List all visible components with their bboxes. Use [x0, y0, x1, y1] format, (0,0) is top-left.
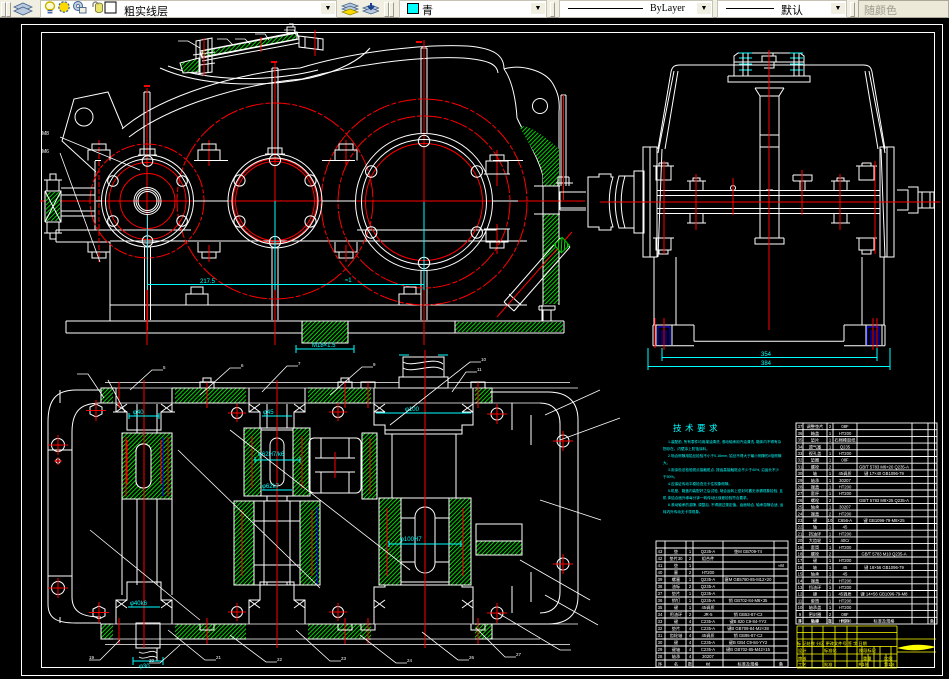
svg-text:217.5: 217.5 — [200, 279, 216, 285]
svg-text:螺栓: 螺栓 — [811, 497, 820, 504]
svg-text:共1张: 共1张 — [858, 661, 870, 668]
svg-text:端盖: 端盖 — [811, 484, 819, 491]
svg-text:销钉: 销钉 — [672, 597, 681, 604]
svg-text:JR-5: JR-5 — [704, 612, 714, 617]
svg-text:21: 21 — [216, 655, 222, 660]
svg-text:轴承: 轴承 — [811, 571, 820, 578]
svg-text:物存在。内壁涂上防蚀涂料。: 物存在。内壁涂上防蚀涂料。 — [663, 446, 710, 451]
svg-text:GB/T 5783 M10 Q235-A: GB/T 5783 M10 Q235-A — [861, 552, 906, 557]
svg-text:34: 34 — [798, 444, 803, 449]
svg-text:45调质: 45调质 — [838, 470, 851, 477]
svg-text:HT200: HT200 — [702, 570, 715, 575]
svg-text:HT200: HT200 — [839, 451, 852, 456]
svg-text:HT200: HT200 — [839, 558, 852, 563]
svg-text:键B GB708-84-M2×38: 键B GB708-84-M2×38 — [727, 625, 769, 632]
svg-text:19: 19 — [798, 545, 803, 550]
svg-text:14: 14 — [798, 578, 803, 583]
svg-text:12: 12 — [798, 592, 803, 597]
svg-text:φ30: φ30 — [139, 664, 150, 670]
svg-text:键 17×40 GB1096-79: 键 17×40 GB1096-79 — [864, 470, 904, 477]
svg-text:塞M GB5780-85-M12×20: 塞M GB5780-85-M12×20 — [725, 576, 773, 582]
svg-text:35: 35 — [658, 605, 663, 610]
svg-text:标准化: 标准化 — [824, 647, 837, 654]
svg-text:挡油环: 挡油环 — [809, 584, 822, 591]
svg-text:13: 13 — [798, 585, 803, 590]
svg-text:HT200: HT200 — [839, 585, 852, 590]
svg-text:轴承: 轴承 — [811, 504, 820, 511]
svg-text:M18×1.5: M18×1.5 — [312, 343, 336, 349]
svg-text:工艺: 工艺 — [798, 662, 806, 667]
svg-text:轴: 轴 — [813, 564, 817, 571]
svg-text:螺塞: 螺塞 — [672, 576, 681, 583]
svg-text:25: 25 — [798, 505, 803, 510]
svg-text:40: 40 — [658, 570, 663, 575]
svg-text:材料: 材料 — [841, 618, 850, 625]
svg-text:27: 27 — [516, 652, 522, 657]
svg-text:24: 24 — [798, 511, 803, 516]
svg-text:21: 21 — [798, 531, 803, 536]
svg-text:φ40: φ40 — [133, 410, 144, 416]
svg-text:C235-A: C235-A — [701, 640, 715, 645]
svg-text:标准及规格: 标准及规格 — [738, 661, 760, 668]
svg-text:标准及规格: 标准及规格 — [874, 618, 896, 625]
svg-text:垫片: 垫片 — [672, 590, 680, 597]
svg-text:31: 31 — [658, 633, 663, 638]
svg-text:M6: M6 — [42, 149, 49, 155]
svg-text:φ45: φ45 — [263, 410, 274, 416]
svg-text:批准: 批准 — [824, 661, 832, 668]
svg-text:32: 32 — [798, 458, 803, 463]
svg-text:23: 23 — [798, 518, 803, 523]
svg-text:键B GB4 C9-84-YY2: 键B GB4 C9-84-YY2 — [729, 639, 768, 646]
svg-text:轴: 轴 — [813, 524, 817, 531]
svg-text:GB/T 5783 M8×25 Q235-A: GB/T 5783 M8×25 Q235-A — [859, 498, 909, 503]
svg-text:视孔盖: 视孔盖 — [809, 450, 822, 457]
svg-text:垫片30: 垫片30 — [669, 555, 683, 562]
svg-text:材: 材 — [706, 661, 710, 667]
svg-text:序: 序 — [658, 661, 662, 668]
svg-text:≈M: ≈M — [778, 563, 784, 568]
svg-text:30207: 30207 — [839, 478, 851, 483]
svg-text:22: 22 — [277, 657, 283, 662]
svg-text:轴承盖: 轴承盖 — [809, 604, 822, 611]
svg-text:384: 384 — [761, 361, 772, 367]
svg-text:密封圈: 密封圈 — [809, 611, 822, 618]
svg-text:3.用涂色法检验斑点接触斑点, 按齿高接触斑点不少于40%,: 3.用涂色法检验斑点接触斑点, 按齿高接触斑点不少于40%, 沿齿长不少 — [668, 467, 780, 472]
svg-text:20: 20 — [149, 658, 155, 663]
svg-text:键B GB702-85-M42×15: 键B GB702-85-M42×15 — [726, 646, 771, 653]
svg-text:HT200: HT200 — [839, 511, 852, 516]
svg-text:HT200: HT200 — [839, 531, 852, 536]
svg-text:甩油环: 甩油环 — [670, 611, 683, 618]
svg-text:φ62k7: φ62k7 — [262, 484, 280, 490]
svg-text:15: 15 — [798, 572, 803, 577]
svg-text:销 GB702-84-M6×35: 销 GB702-84-M6×35 — [729, 597, 768, 604]
svg-text:5.机座、箱盖内装配好之后试验, 啮合运转上密封可靠无渗漏现: 5.机座、箱盖内装配好之后试验, 啮合运转上密封可靠无渗漏现象检验, 且 — [668, 488, 783, 493]
svg-text:Q235-A: Q235-A — [701, 591, 716, 596]
svg-text:354: 354 — [761, 352, 772, 358]
svg-text:1.装配前, 所有零件均用煤油清洗, 滚动轴承用汽油清洗,: 1.装配前, 所有零件均用煤油清洗, 滚动轴承用汽油清洗, 箱体内不得有杂 — [668, 439, 782, 444]
svg-text:11: 11 — [798, 598, 803, 603]
svg-text:调整垫片: 调整垫片 — [807, 423, 824, 430]
svg-text:37: 37 — [658, 591, 663, 596]
svg-text:C235-A: C235-A — [701, 647, 715, 652]
svg-text:套筒: 套筒 — [811, 544, 819, 551]
svg-text:22: 22 — [798, 525, 803, 530]
svg-text:石棉橡胶纸: 石棉橡胶纸 — [835, 437, 857, 444]
svg-text:Q235: Q235 — [840, 444, 851, 449]
svg-text:45: 45 — [843, 565, 848, 570]
svg-text:Q235-A: Q235-A — [701, 598, 716, 603]
svg-text:08F: 08F — [841, 424, 849, 429]
svg-text:36: 36 — [798, 431, 803, 436]
svg-text:HT200: HT200 — [839, 431, 852, 436]
svg-text:37: 37 — [798, 424, 803, 429]
svg-text:36: 36 — [658, 598, 663, 603]
svg-text:技术要求: 技术要求 — [673, 423, 721, 433]
svg-text:33: 33 — [798, 451, 803, 456]
svg-text:42: 42 — [658, 556, 663, 561]
svg-text:45: 45 — [843, 525, 848, 530]
svg-text:30207: 30207 — [702, 654, 714, 659]
svg-text:29: 29 — [798, 478, 803, 483]
svg-text:24: 24 — [407, 658, 413, 663]
svg-text:键轴: 键轴 — [672, 646, 680, 653]
svg-text:11: 11 — [477, 367, 482, 372]
svg-text:垫片: 垫片 — [672, 625, 680, 632]
svg-text:垫M GB709-74: 垫M GB709-74 — [734, 548, 763, 554]
svg-text:33: 33 — [658, 619, 663, 624]
svg-text:φ100H7: φ100H7 — [400, 537, 422, 543]
svg-text:垫片: 垫片 — [811, 437, 819, 444]
svg-text:39: 39 — [658, 577, 663, 582]
svg-text:≈1: ≈1 — [345, 278, 352, 284]
svg-text:大齿轮: 大齿轮 — [809, 537, 822, 544]
svg-text:M8: M8 — [42, 131, 49, 137]
svg-text:端盖: 端盖 — [811, 577, 819, 584]
svg-text:比例: 比例 — [884, 655, 892, 662]
svg-text:4.应保证传动平稳检查无卡住现象侧隙。: 4.应保证传动平稳检查无卡住现象侧隙。 — [668, 481, 732, 486]
svg-text:30: 30 — [658, 640, 663, 645]
svg-text:2.啮合侧隙用铅丝检验不小于0.16mm, 铅丝不得大于最小: 2.啮合侧隙用铅丝检验不小于0.16mm, 铅丝不得大于最小侧隙的4倍侧隙 — [668, 453, 782, 458]
svg-text:Q235-A: Q235-A — [701, 577, 716, 582]
svg-text:GB/T 5783 M6×20 Q235-A: GB/T 5783 M6×20 Q235-A — [859, 464, 909, 469]
svg-text:35: 35 — [798, 438, 803, 443]
svg-text:设计: 设计 — [798, 647, 806, 654]
svg-text:HT200: HT200 — [839, 545, 852, 550]
svg-text:45调质: 45调质 — [838, 591, 851, 598]
svg-text:油标: 油标 — [672, 583, 680, 590]
svg-text:45调质: 45调质 — [701, 604, 714, 611]
svg-text:名: 名 — [674, 661, 678, 668]
svg-text:28: 28 — [658, 654, 663, 659]
svg-text:销 GB95-87-C2: 销 GB95-87-C2 — [734, 632, 764, 639]
svg-text:键 16×56 GB1096-79: 键 16×56 GB1096-79 — [864, 564, 904, 571]
svg-text:转内外传动无卡滞现象。: 转内外传动无卡滞现象。 — [663, 509, 703, 514]
svg-text:27: 27 — [798, 491, 803, 496]
svg-text:审核: 审核 — [798, 655, 807, 662]
svg-text:垫圈: 垫圈 — [811, 457, 819, 464]
svg-text:30207: 30207 — [839, 505, 851, 510]
svg-text:轴承: 轴承 — [672, 653, 681, 660]
svg-text:键 14×56 GB1096-79-M8: 键 14×56 GB1096-79-M8 — [861, 591, 909, 598]
svg-text:螺栓: 螺栓 — [811, 551, 820, 558]
svg-text:C235-A: C235-A — [701, 626, 715, 631]
svg-text:键 GB1096-79-M8×25: 键 GB1096-79-M8×25 — [863, 517, 905, 524]
svg-text:Q235-A: Q235-A — [701, 584, 716, 589]
svg-text:45: 45 — [843, 572, 848, 577]
svg-text:32: 32 — [658, 626, 663, 631]
svg-text:阶段标记: 阶段标记 — [859, 647, 877, 654]
svg-text:HT200: HT200 — [839, 485, 852, 490]
svg-text:34: 34 — [658, 612, 663, 617]
svg-text:23: 23 — [341, 656, 347, 661]
svg-text:HT200: HT200 — [839, 605, 852, 610]
svg-text:大。: 大。 — [663, 460, 670, 465]
svg-text:08F: 08F — [841, 612, 849, 617]
svg-text:箱盖: 箱盖 — [811, 430, 819, 437]
svg-text:挡油环: 挡油环 — [809, 530, 822, 537]
svg-text:30: 30 — [798, 471, 803, 476]
svg-text:26: 26 — [798, 498, 803, 503]
svg-text:28: 28 — [798, 485, 803, 490]
svg-text:29: 29 — [658, 647, 663, 652]
svg-text:16: 16 — [798, 565, 803, 570]
svg-text:6.滚动轴承的游隙, 调整后, 不得超过规定值。齿面啮合,: 6.滚动轴承的游隙, 调整后, 不得超过规定值。齿面啮合, 轴承游隙合适, 运 — [668, 502, 784, 507]
svg-text:31: 31 — [798, 464, 803, 469]
svg-text:轴承: 轴承 — [811, 477, 820, 484]
svg-text:重量: 重量 — [863, 655, 871, 662]
svg-text:标 记处数 分区 更改文件号 签 字 日期: 标 记处数 分区 更改文件号 签 字 日期 — [797, 640, 867, 647]
svg-text:φ40k6: φ40k6 — [130, 601, 148, 607]
svg-text:Q235-A: Q235-A — [701, 549, 716, 554]
svg-text:序: 序 — [798, 618, 802, 625]
svg-text:40Cr: 40Cr — [840, 538, 850, 543]
svg-text:套筒: 套筒 — [811, 597, 819, 604]
svg-text:20: 20 — [798, 538, 803, 543]
svg-text:螺栓: 螺栓 — [811, 463, 820, 470]
svg-text:19: 19 — [89, 655, 95, 660]
svg-text:于50%。: 于50%。 — [663, 475, 677, 479]
svg-text:键B 820 C9-84-YY2: 键B 820 C9-84-YY2 — [729, 618, 767, 625]
svg-text:45调质: 45调质 — [701, 632, 714, 639]
svg-text:透气塞: 透气塞 — [809, 443, 822, 450]
svg-text:第1张: 第1张 — [884, 661, 896, 668]
svg-text:轴: 轴 — [813, 470, 817, 477]
svg-text:套杯: 套杯 — [811, 490, 820, 497]
svg-text:齿轮轴: 齿轮轴 — [670, 632, 683, 639]
svg-text:17: 17 — [798, 558, 803, 563]
svg-text:41: 41 — [658, 563, 663, 568]
svg-text:43: 43 — [658, 549, 663, 554]
svg-text:销 GB53-87-C2: 销 GB53-87-C2 — [734, 611, 764, 618]
svg-text:机 体结合面外缘每分钟一转传动比误差检验符合要求。: 机 体结合面外缘每分钟一转传动比误差检验符合要求。 — [663, 495, 750, 500]
svg-text:HT200: HT200 — [839, 578, 852, 583]
svg-text:18: 18 — [798, 552, 803, 557]
svg-text:38: 38 — [658, 584, 663, 589]
svg-text:端盖: 端盖 — [811, 510, 819, 517]
svg-text:HT200: HT200 — [839, 491, 852, 496]
svg-text:10: 10 — [481, 357, 487, 362]
svg-text:08F: 08F — [841, 458, 849, 463]
svg-text:名称: 名称 — [811, 618, 819, 625]
svg-text:26: 26 — [469, 655, 475, 660]
svg-text:C235-A: C235-A — [701, 619, 715, 624]
svg-text:10: 10 — [798, 605, 803, 610]
svg-text:10: 10 — [828, 518, 833, 523]
svg-text:C656-A: C656-A — [838, 518, 852, 523]
svg-text:组合件: 组合件 — [702, 555, 715, 562]
svg-text:HT200: HT200 — [839, 598, 852, 603]
